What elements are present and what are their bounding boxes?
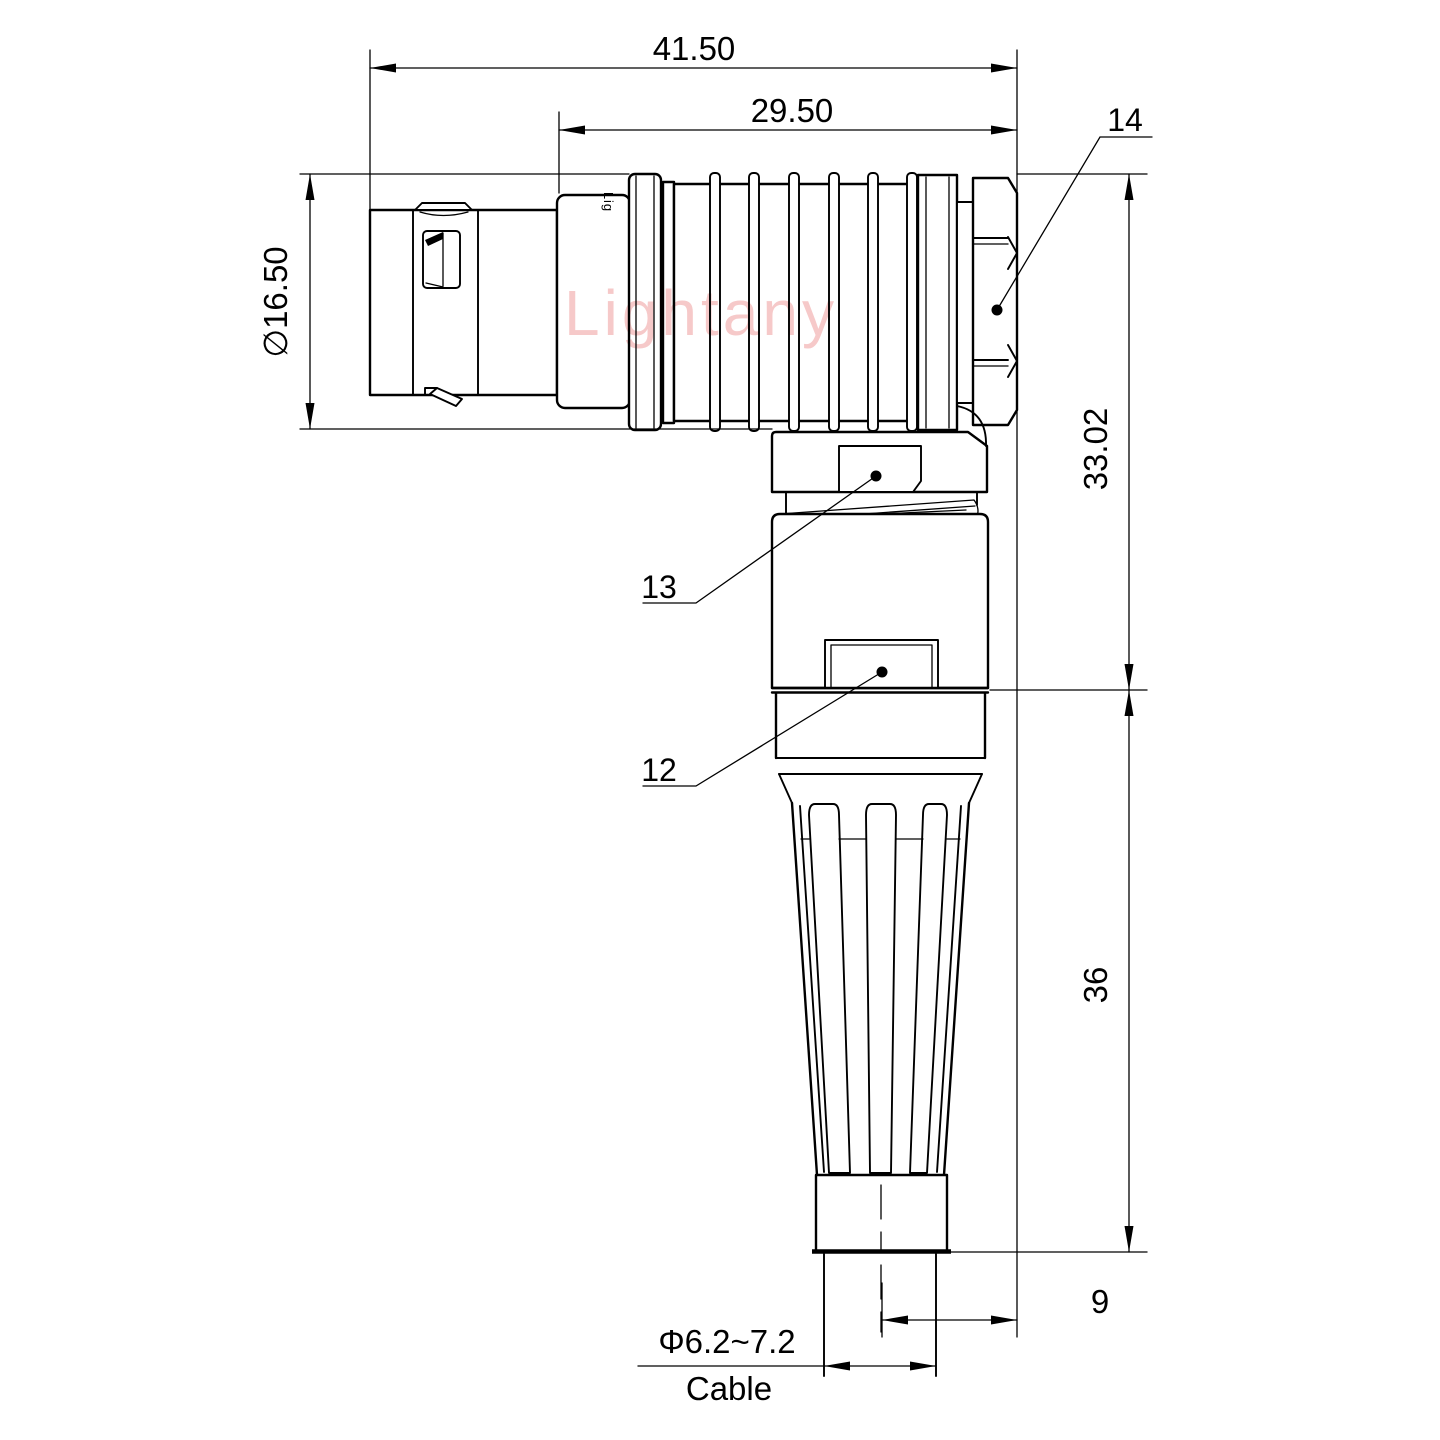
brand-engraving: Lig <box>601 192 616 212</box>
back-band <box>918 175 957 430</box>
callout-13-label: 13 <box>641 569 677 605</box>
cable-label: Cable <box>686 1370 772 1407</box>
nose-shell <box>370 210 557 395</box>
callout-14-label: 14 <box>1107 102 1143 138</box>
back-neck <box>957 202 973 403</box>
hex-backnut <box>973 178 1017 425</box>
plug-nose <box>370 203 557 406</box>
flute-1 <box>809 804 850 1173</box>
callout-12-label: 12 <box>641 752 677 788</box>
collar-tab <box>839 446 921 492</box>
callout-13-dot <box>871 471 882 482</box>
dim-cable-diameter: Φ6.2~7.2 <box>658 1323 795 1360</box>
dim-cable-offset: 9 <box>1091 1283 1109 1320</box>
cable-edges <box>824 1254 936 1376</box>
callout-14-dot <box>992 305 1003 316</box>
dim-overall-length: 41.50 <box>653 30 736 67</box>
body-tab <box>825 640 938 688</box>
flute-2 <box>866 804 896 1173</box>
connector-side-view <box>370 173 1017 1376</box>
backnut-outline <box>973 178 1017 425</box>
callout-12-dot <box>877 667 888 678</box>
lower-body-sides <box>776 693 985 758</box>
watermark: Lightany <box>564 277 838 349</box>
top-key-bump <box>415 203 472 210</box>
dim-rear-length: 29.50 <box>751 92 834 129</box>
strain-relief-cone <box>792 803 969 1175</box>
dim-body-height: 36 <box>1077 967 1114 1004</box>
dim-shell-diameter: ∅16.50 <box>257 246 294 357</box>
connector-technical-drawing: 41.50 29.50 ∅16.50 33.02 36 9 Φ6.2~7.2 C… <box>0 0 1440 1440</box>
dim-axis-height: 33.02 <box>1077 408 1114 491</box>
shoulder-taper <box>779 774 982 803</box>
shoulder-lines <box>776 758 985 774</box>
